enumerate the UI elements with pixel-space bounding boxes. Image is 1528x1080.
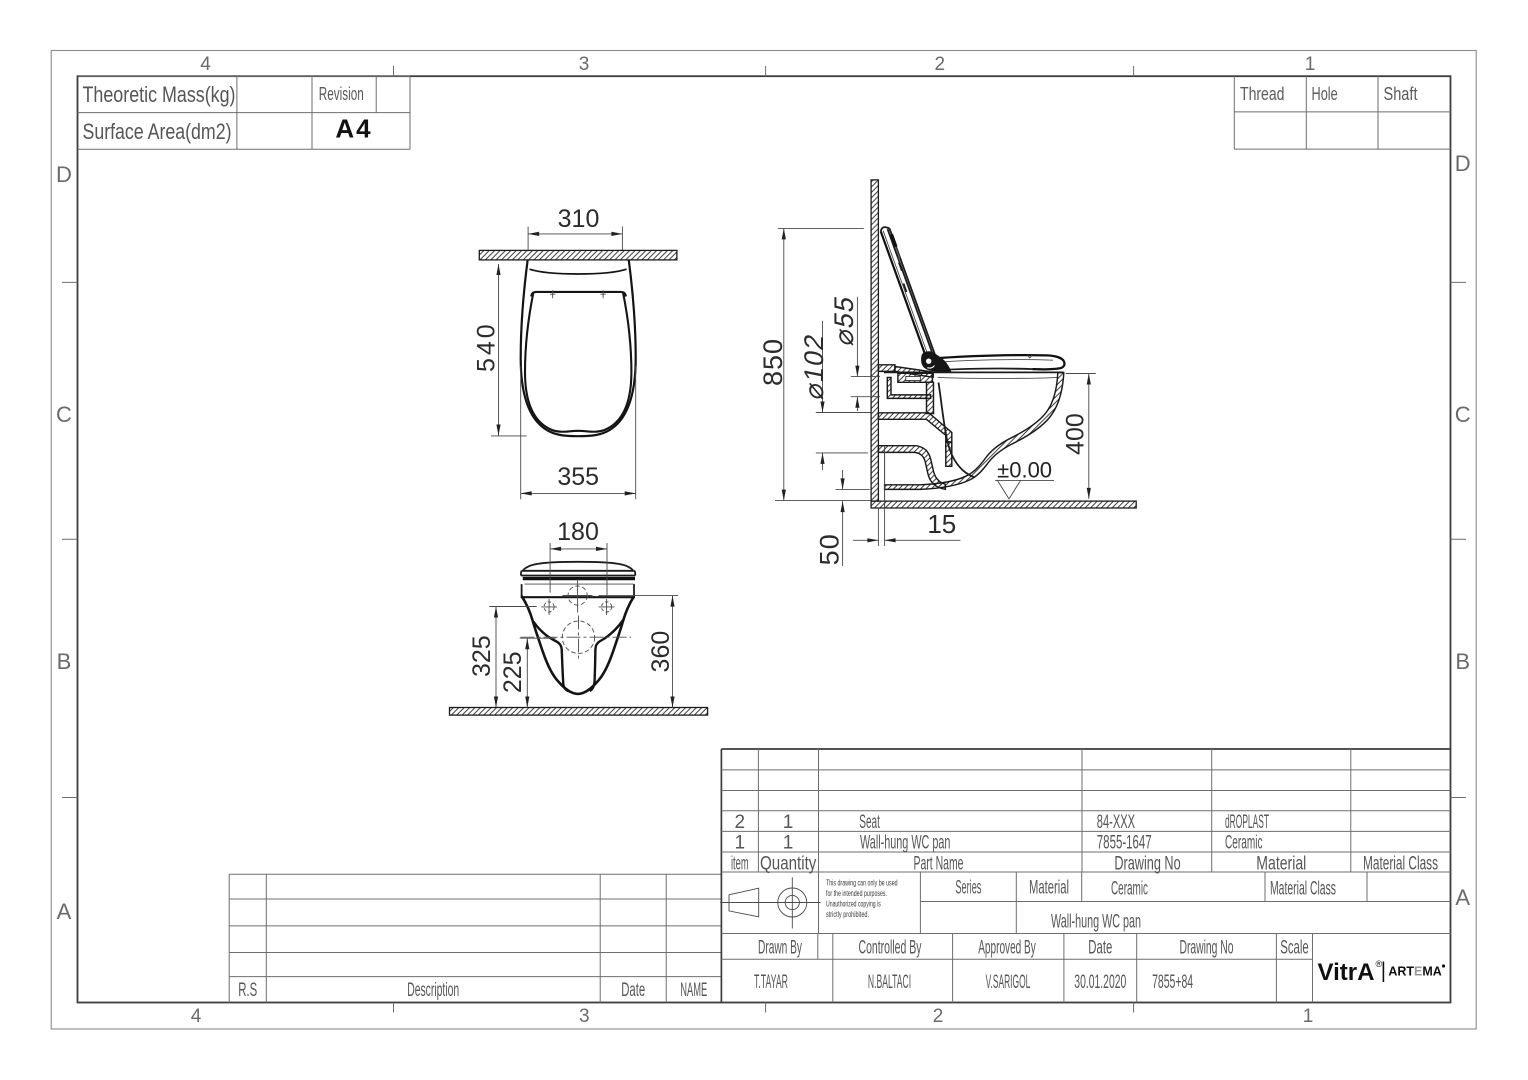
svg-text:Revision: Revision xyxy=(319,84,364,104)
svg-text:Date: Date xyxy=(621,980,645,1001)
svg-text:item: item xyxy=(731,854,749,875)
svg-text:Material: Material xyxy=(1029,878,1069,899)
svg-text:B: B xyxy=(1455,649,1470,674)
svg-text:for the intended purposes.: for the intended purposes. xyxy=(826,888,887,898)
svg-text:Seat: Seat xyxy=(859,812,880,833)
svg-text:7855+84: 7855+84 xyxy=(1152,972,1193,993)
svg-text:540: 540 xyxy=(473,321,501,372)
svg-text:1: 1 xyxy=(735,833,746,854)
svg-text:310: 310 xyxy=(558,205,600,233)
svg-text:Part Name: Part Name xyxy=(914,854,964,875)
svg-text:50: 50 xyxy=(815,533,845,565)
svg-text:180: 180 xyxy=(557,518,599,546)
svg-text:dROPLAST: dROPLAST xyxy=(1225,812,1269,833)
svg-text:C: C xyxy=(1455,402,1471,427)
svg-text:1: 1 xyxy=(1303,1006,1314,1027)
svg-text:225: 225 xyxy=(499,651,527,693)
svg-text:2: 2 xyxy=(933,1006,944,1027)
svg-text:Approved By: Approved By xyxy=(978,938,1036,959)
svg-text:Theoretic Mass(kg): Theoretic Mass(kg) xyxy=(83,82,236,107)
svg-text:7855-1647: 7855-1647 xyxy=(1097,833,1152,854)
svg-text:B: B xyxy=(57,649,72,674)
svg-text:325: 325 xyxy=(468,635,496,677)
svg-text:Ceramic: Ceramic xyxy=(1225,833,1263,854)
svg-text:Drawn By: Drawn By xyxy=(758,938,802,959)
svg-text:Shaft: Shaft xyxy=(1384,84,1418,104)
svg-text:400: 400 xyxy=(1062,413,1090,455)
svg-text:strictly prohibited.: strictly prohibited. xyxy=(826,909,869,919)
svg-text:VitrA: VitrA xyxy=(1318,959,1375,986)
svg-text:Drawing No: Drawing No xyxy=(1180,938,1234,959)
svg-text:ARTEMA: ARTEMA xyxy=(1388,964,1442,979)
svg-text:1: 1 xyxy=(783,812,794,833)
svg-text:Controlled By: Controlled By xyxy=(859,938,922,959)
svg-text:D: D xyxy=(56,162,72,187)
svg-text:Hole: Hole xyxy=(1312,84,1338,104)
svg-text:Surface Area(dm2): Surface Area(dm2) xyxy=(83,119,232,144)
svg-text:Unauthorized copying is: Unauthorized copying is xyxy=(826,899,881,909)
svg-text:N.BALTACI: N.BALTACI xyxy=(868,972,911,993)
svg-text:Material: Material xyxy=(1256,854,1306,875)
svg-text:A4: A4 xyxy=(335,114,372,144)
svg-text:Material Class: Material Class xyxy=(1270,879,1336,900)
svg-text:Scale: Scale xyxy=(1280,938,1309,959)
svg-text:Material Class: Material Class xyxy=(1363,854,1438,875)
svg-text:⌀102: ⌀102 xyxy=(798,331,829,402)
svg-text:4: 4 xyxy=(200,54,211,75)
svg-text:3: 3 xyxy=(579,1006,590,1027)
svg-text:2: 2 xyxy=(935,54,946,75)
svg-text:C: C xyxy=(56,402,72,427)
svg-text:1: 1 xyxy=(1305,54,1316,75)
svg-text:84-XXX: 84-XXX xyxy=(1097,812,1135,833)
svg-text:2: 2 xyxy=(735,812,746,833)
svg-text:T.TAYAR: T.TAYAR xyxy=(754,972,788,993)
svg-text:3: 3 xyxy=(579,54,590,75)
svg-text:Thread: Thread xyxy=(1240,84,1285,104)
svg-text:This drawing can only be used: This drawing can only be used xyxy=(826,878,898,888)
svg-text:355: 355 xyxy=(557,463,599,491)
svg-text:Drawing No: Drawing No xyxy=(1114,854,1180,875)
svg-text:1: 1 xyxy=(783,833,794,854)
svg-text:360: 360 xyxy=(647,631,675,673)
svg-text:Series: Series xyxy=(955,878,981,899)
svg-text:NAME: NAME xyxy=(680,980,707,1001)
svg-text:Date: Date xyxy=(1088,938,1112,959)
svg-text:Wall-hung WC pan: Wall-hung WC pan xyxy=(860,833,950,854)
svg-text:±0.00: ±0.00 xyxy=(997,458,1052,483)
svg-text:30.01.2020: 30.01.2020 xyxy=(1074,972,1126,993)
svg-text:⌀55: ⌀55 xyxy=(828,293,859,348)
svg-text:Ceramic: Ceramic xyxy=(1111,879,1148,900)
svg-text:4: 4 xyxy=(191,1006,202,1027)
svg-text:®: ® xyxy=(1376,959,1383,969)
svg-text:15: 15 xyxy=(927,509,956,539)
svg-text:D: D xyxy=(1455,151,1471,176)
svg-text:Description: Description xyxy=(407,980,459,1001)
svg-text:R.S: R.S xyxy=(238,980,257,1001)
svg-text:850: 850 xyxy=(758,338,788,386)
svg-text:A: A xyxy=(1455,885,1470,910)
svg-text:V.SARIGOL: V.SARIGOL xyxy=(986,972,1031,993)
svg-text:Quantity: Quantity xyxy=(760,854,817,875)
svg-text:Wall-hung WC pan: Wall-hung WC pan xyxy=(1051,912,1141,933)
svg-text:A: A xyxy=(57,899,72,924)
